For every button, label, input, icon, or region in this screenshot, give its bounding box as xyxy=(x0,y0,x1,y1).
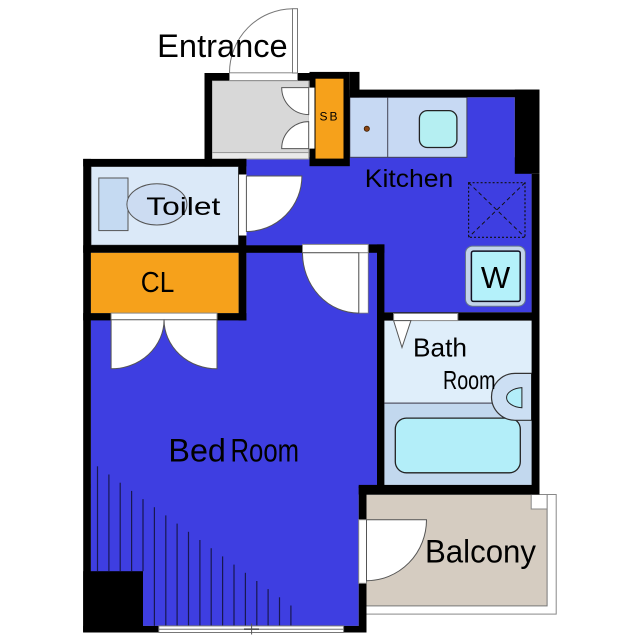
svg-text:Entrance: Entrance xyxy=(157,28,288,64)
svg-text:Balcony: Balcony xyxy=(425,534,536,570)
svg-text:CL: CL xyxy=(141,267,175,299)
svg-text:Kitchen: Kitchen xyxy=(365,165,454,193)
svg-text:SB: SB xyxy=(319,110,339,124)
svg-text:Bath: Bath xyxy=(413,332,467,362)
svg-text:W: W xyxy=(481,260,511,295)
svg-text:Room: Room xyxy=(231,432,300,468)
svg-text:Bed: Bed xyxy=(168,432,226,468)
svg-text:Room: Room xyxy=(443,365,496,395)
svg-text:Toilet: Toilet xyxy=(146,193,220,221)
